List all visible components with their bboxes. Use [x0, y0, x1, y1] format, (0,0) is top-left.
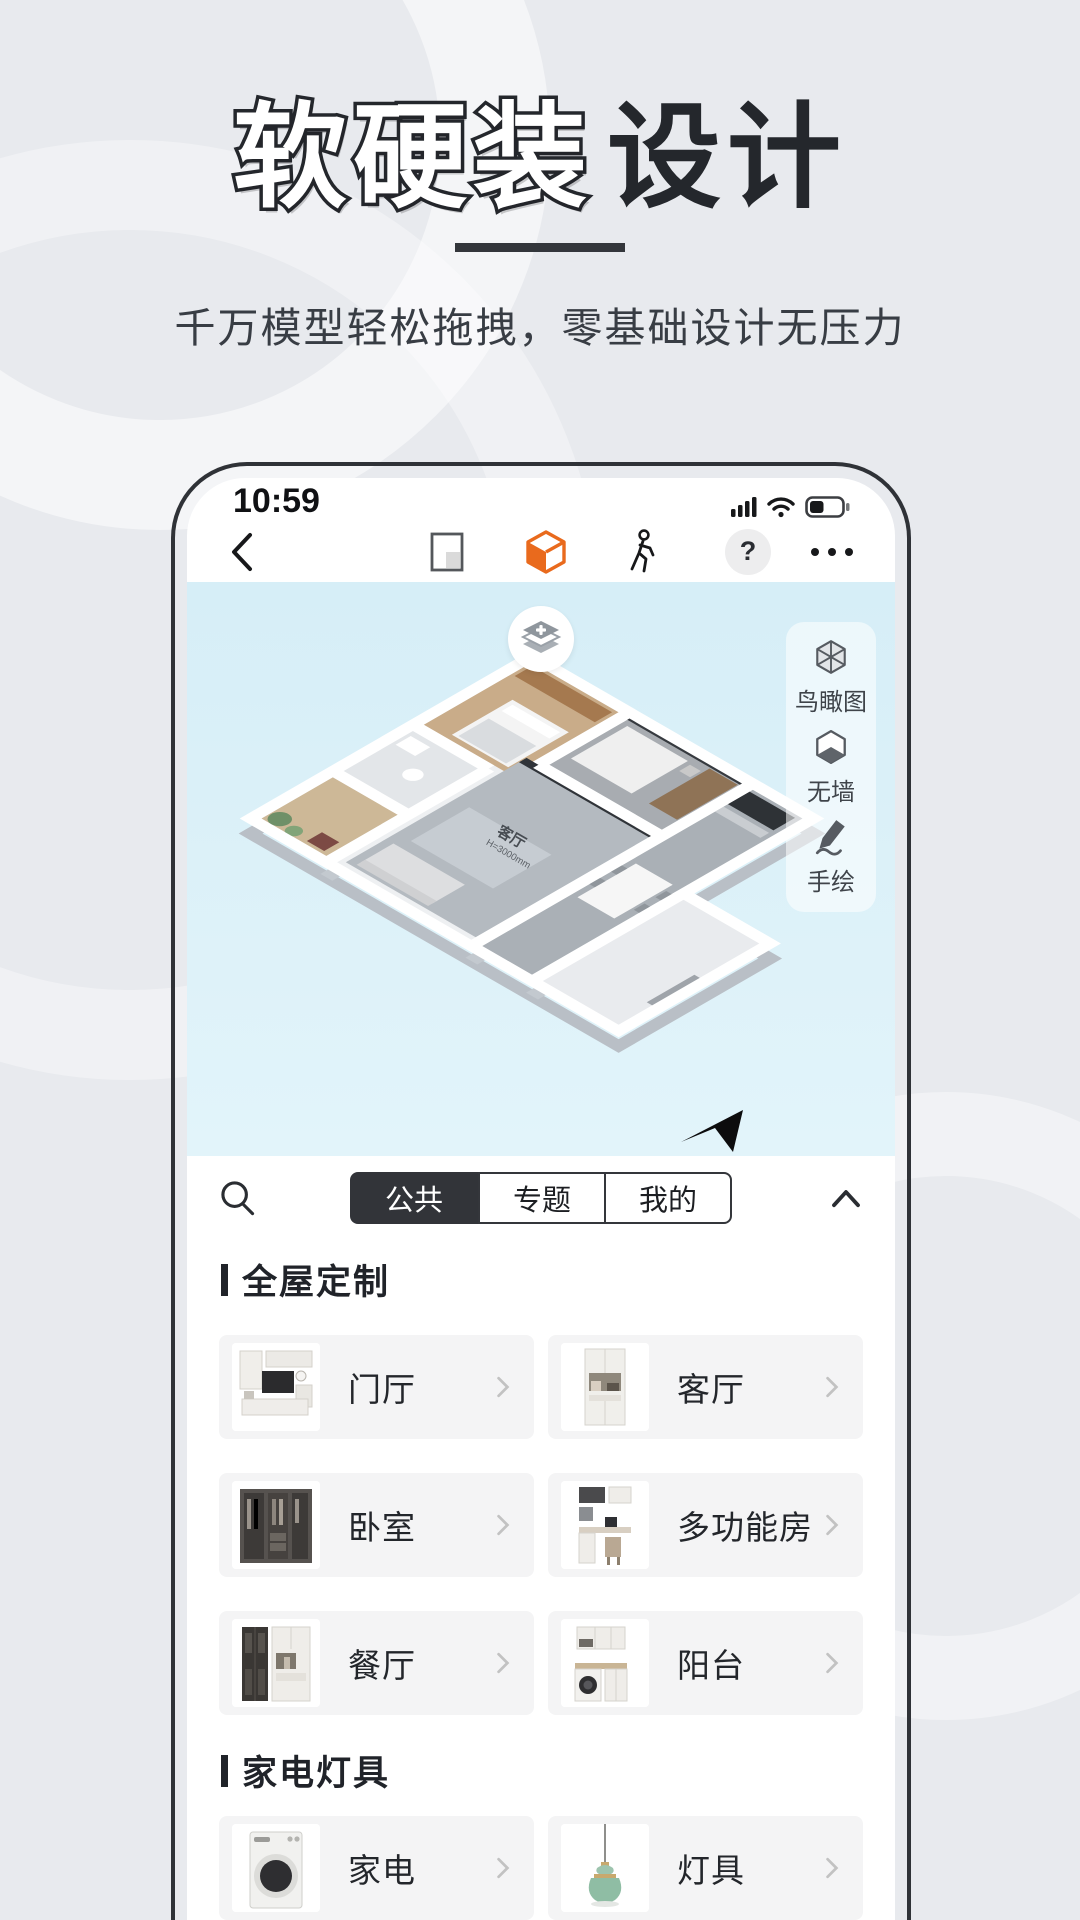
catalog-tab-row: 公共 专题 我的	[219, 1156, 863, 1240]
layers-button[interactable]	[508, 606, 574, 672]
title-outline-text: 软硬装	[233, 95, 593, 222]
floorplan-2d-button[interactable]	[429, 531, 465, 573]
draw-pencil-icon	[811, 818, 851, 856]
thumbnail-entry-cabinet	[232, 1343, 320, 1431]
category-label: 门厅	[348, 1363, 416, 1411]
phone-screen: 10:59	[187, 478, 895, 1920]
thumbnail-dining-cabinet	[232, 1619, 320, 1707]
chevron-right-icon	[496, 1514, 510, 1536]
tool-label: 手绘	[807, 862, 855, 897]
category-card-living[interactable]: 客厅	[548, 1335, 863, 1439]
category-card-multiroom[interactable]: 多功能房	[548, 1473, 863, 1577]
search-icon[interactable]	[219, 1179, 257, 1217]
page-subtitle: 千万模型轻松拖拽，零基础设计无压力	[0, 294, 1080, 354]
chevron-right-icon	[496, 1376, 510, 1398]
wifi-icon	[767, 496, 795, 518]
catalog-panel: 公共 专题 我的 全屋定制	[187, 1156, 895, 1920]
view-3d-button[interactable]	[525, 530, 567, 574]
help-button[interactable]: ?	[725, 529, 771, 575]
section-title: 家电灯具	[242, 1745, 390, 1796]
floorplan-2d-icon	[429, 531, 465, 573]
category-label: 家电	[348, 1844, 416, 1892]
thumbnail-multi-room-desk	[561, 1481, 649, 1569]
tool-draw[interactable]: 手绘	[807, 818, 855, 897]
category-label: 灯具	[677, 1844, 745, 1892]
chevron-up-icon[interactable]	[829, 1186, 863, 1210]
tab-public[interactable]: 公共	[350, 1172, 478, 1224]
nowall-cube-icon	[811, 728, 851, 766]
tab-topics[interactable]: 专题	[478, 1172, 606, 1224]
view-tool-panel: 鸟瞰图 无墙 手绘	[786, 622, 876, 912]
section-header-appliance: 家电灯具	[221, 1745, 863, 1796]
birdseye-cube-icon	[811, 638, 851, 676]
status-time: 10:59	[233, 482, 320, 521]
category-card-entry[interactable]: 门厅	[219, 1335, 534, 1439]
chevron-right-icon	[496, 1652, 510, 1674]
help-label: ?	[740, 536, 757, 567]
more-dots-icon	[811, 548, 819, 556]
tool-nowall[interactable]: 无墙	[807, 728, 855, 807]
category-label: 卧室	[348, 1501, 416, 1549]
walkthrough-button[interactable]	[625, 529, 659, 575]
more-button[interactable]	[811, 548, 853, 556]
category-card-balcony[interactable]: 阳台	[548, 1611, 863, 1715]
thumbnail-living-cabinet	[561, 1343, 649, 1431]
chevron-right-icon	[496, 1857, 510, 1879]
status-icons	[731, 495, 851, 521]
back-chevron-icon	[229, 531, 255, 573]
phone-mockup: 10:59	[171, 462, 911, 1920]
walkthrough-icon	[625, 529, 659, 575]
signal-icon	[731, 496, 757, 518]
title-divider	[455, 243, 625, 252]
thumbnail-balcony-laundry	[561, 1619, 649, 1707]
cube-3d-icon	[525, 530, 567, 574]
battery-icon	[805, 495, 851, 519]
category-label: 客厅	[677, 1363, 745, 1411]
chevron-right-icon	[825, 1514, 839, 1536]
status-bar: 10:59	[187, 478, 895, 521]
category-grid: 门厅	[219, 1335, 863, 1715]
thumbnail-washing-machine	[232, 1824, 320, 1912]
category-card-lighting[interactable]: 灯具	[548, 1816, 863, 1920]
chevron-right-icon	[825, 1376, 839, 1398]
thumbnail-pendant-lamp	[561, 1824, 649, 1912]
category-label: 多功能房	[677, 1501, 813, 1549]
floorplan-3d-viewport[interactable]: 鸟瞰图 无墙 手绘	[187, 582, 895, 1156]
tool-label: 鸟瞰图	[795, 682, 867, 717]
title-solid-text: 设计	[607, 95, 847, 222]
hero-section: 软硬装设计 千万模型轻松拖拽，零基础设计无压力	[0, 0, 1080, 354]
section-header-custom: 全屋定制	[221, 1254, 863, 1305]
category-card-appliance[interactable]: 家电	[219, 1816, 534, 1920]
thumbnail-wardrobe	[232, 1481, 320, 1569]
chevron-right-icon	[825, 1652, 839, 1674]
catalog-tabs: 公共 专题 我的	[350, 1172, 732, 1224]
category-card-dining[interactable]: 餐厅	[219, 1611, 534, 1715]
tab-mine[interactable]: 我的	[604, 1172, 732, 1224]
section-title: 全屋定制	[242, 1254, 390, 1305]
layers-add-icon	[519, 619, 563, 659]
tool-label: 无墙	[807, 772, 855, 807]
section-bar	[221, 1264, 228, 1296]
category-label: 阳台	[677, 1639, 745, 1687]
category-label: 餐厅	[348, 1639, 416, 1687]
back-button[interactable]	[229, 531, 255, 573]
category-card-bedroom[interactable]: 卧室	[219, 1473, 534, 1577]
page-title: 软硬装设计	[0, 96, 1080, 221]
section-bar	[221, 1755, 228, 1787]
category-grid: 家电	[219, 1816, 863, 1920]
tool-birdseye[interactable]: 鸟瞰图	[795, 638, 867, 717]
chevron-right-icon	[825, 1857, 839, 1879]
editor-toolbar: ?	[187, 521, 895, 582]
